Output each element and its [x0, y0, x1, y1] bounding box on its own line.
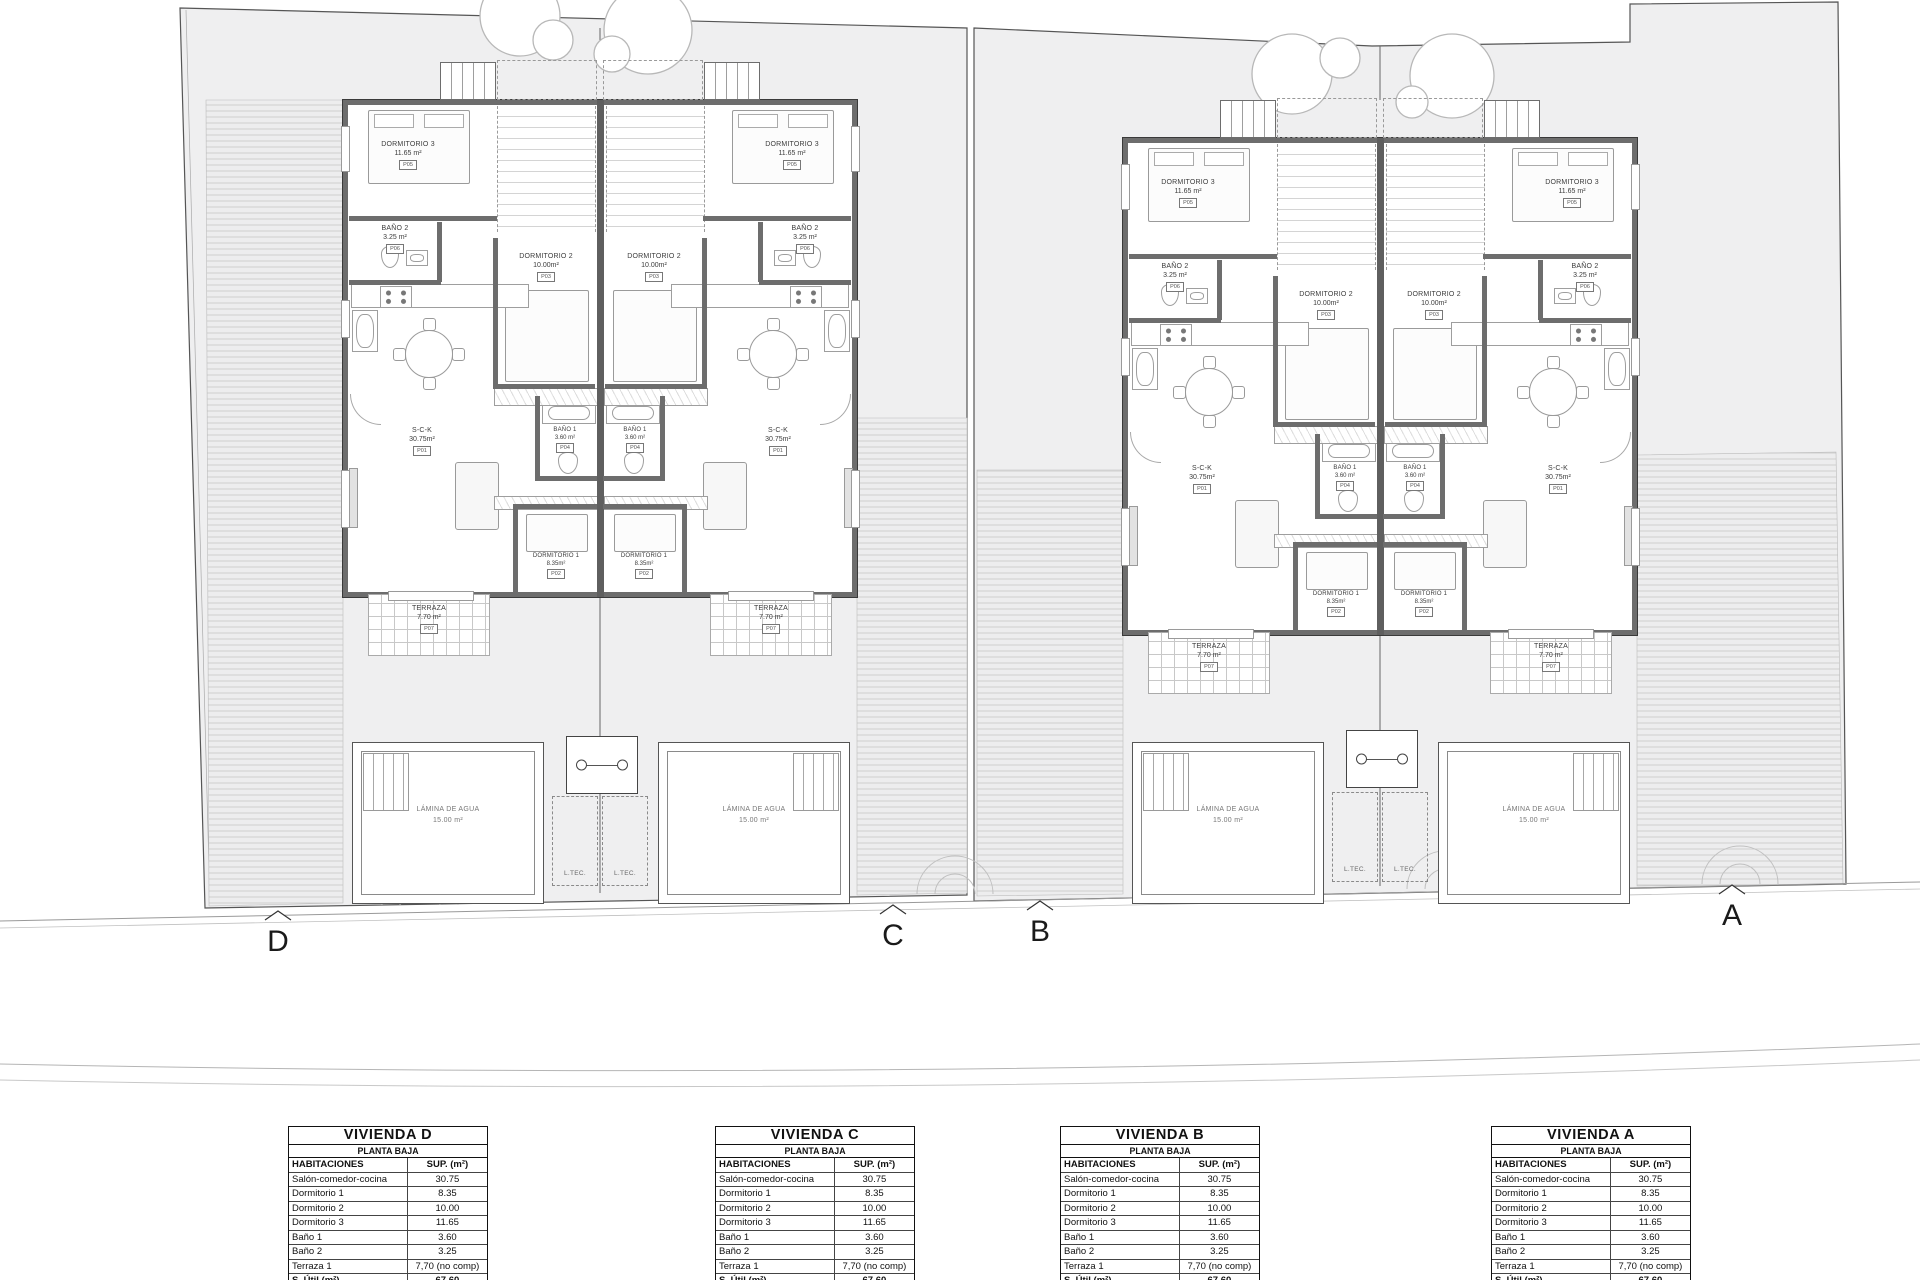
wall — [513, 504, 597, 509]
window — [1121, 164, 1130, 210]
room-label-bano1: BAÑO 13.60 m²P04 — [606, 426, 664, 453]
roof-overhang-outline — [603, 60, 703, 100]
wall — [1273, 422, 1375, 427]
table-vivienda-b: VIVIENDA B PLANTA BAJA HABITACIONESSUP. … — [1060, 1126, 1260, 1280]
table-row: Baño 13.60 — [289, 1231, 487, 1246]
room-label-bano2: BAÑO 23.25 m²P06 — [1132, 262, 1218, 292]
sofa — [703, 462, 747, 530]
pool-stairs — [1573, 753, 1619, 811]
exterior-stairs — [1220, 100, 1276, 138]
table-row: Terraza 17,70 (no comp) — [1061, 1260, 1259, 1275]
sofa — [455, 462, 499, 530]
kitchen-sink-icon — [352, 310, 378, 352]
kitchen-sink-icon — [1604, 348, 1630, 390]
section-marker-letter: A — [1704, 901, 1760, 931]
table-header-row: HABITACIONESSUP. (m²) — [289, 1158, 487, 1173]
table-total-row: S. Útil (m²)67.60 — [1061, 1274, 1259, 1280]
pool-d: LÁMINA DE AGUA15.00 m² — [352, 742, 544, 904]
pool-a: LÁMINA DE AGUA15.00 m² — [1438, 742, 1630, 904]
wardrobe — [494, 388, 598, 406]
tv-cabinet — [1129, 506, 1138, 566]
terrace-door — [1508, 629, 1594, 639]
window — [851, 300, 860, 338]
stair-bay — [497, 106, 596, 232]
wardrobe — [1384, 426, 1488, 444]
window — [341, 300, 350, 338]
room-label-bano1: BAÑO 13.60 m²P04 — [1316, 464, 1374, 491]
kitchen-sink-icon — [1132, 348, 1158, 390]
table-row: Baño 13.60 — [1492, 1231, 1690, 1246]
section-marker-b: B — [1012, 898, 1068, 947]
window — [851, 126, 860, 172]
table-row: Dormitorio 210.00 — [1492, 1202, 1690, 1217]
table-row: Salón-comedor-cocina30.75 — [716, 1173, 914, 1188]
section-marker-letter: C — [865, 921, 921, 951]
kitchen-counter — [671, 284, 849, 308]
table-header-row: HABITACIONESSUP. (m²) — [1492, 1158, 1690, 1173]
wall — [1315, 514, 1377, 519]
deck-strip-c — [857, 418, 967, 895]
pool-label: LÁMINA DE AGUA15.00 m² — [1133, 805, 1323, 826]
table-row: Terraza 17,70 (no comp) — [1492, 1260, 1690, 1275]
section-marker-triangle — [263, 909, 293, 921]
table-vivienda-c: VIVIENDA C PLANTA BAJA HABITACIONESSUP. … — [715, 1126, 915, 1280]
table-title: VIVIENDA B — [1061, 1127, 1259, 1145]
ltec-area: L.TEC. — [1382, 792, 1428, 882]
table-row: Terraza 17,70 (no comp) — [716, 1260, 914, 1275]
room-label-dormitorio3: DORMITORIO 311.65 m²P05 — [736, 140, 848, 170]
sofa — [1235, 500, 1279, 568]
single-bed — [1394, 552, 1456, 590]
wall — [493, 238, 498, 388]
table-title: VIVIENDA D — [289, 1127, 487, 1145]
dining-table — [1529, 368, 1577, 416]
dining-table — [1185, 368, 1233, 416]
deck-strip-a — [1637, 452, 1843, 886]
room-label-dormitorio2: DORMITORIO 210.00m²P03 — [608, 252, 700, 282]
table-subtitle: PLANTA BAJA — [716, 1145, 914, 1158]
pool-label: LÁMINA DE AGUA15.00 m² — [353, 805, 543, 826]
room-label-sck: S-C-K30.75m²P01 — [1172, 464, 1232, 494]
table-subtitle: PLANTA BAJA — [1492, 1145, 1690, 1158]
wall — [1385, 422, 1487, 427]
kitchen-sink-icon — [824, 310, 850, 352]
window — [851, 470, 860, 528]
room-label-dormitorio1: DORMITORIO 18.35m²P02 — [518, 552, 594, 579]
table-row: Dormitorio 210.00 — [1061, 1202, 1259, 1217]
table-row: Terraza 17,70 (no comp) — [289, 1260, 487, 1275]
table-subtitle: PLANTA BAJA — [289, 1145, 487, 1158]
table-vivienda-d: VIVIENDA D PLANTA BAJA HABITACIONESSUP. … — [288, 1126, 488, 1280]
ltec-area: L.TEC. — [1332, 792, 1378, 882]
exterior-stairs — [704, 62, 760, 100]
pool-stairs — [1143, 753, 1189, 811]
stair-bay — [1277, 144, 1376, 270]
table-row: Dormitorio 311.65 — [1492, 1216, 1690, 1231]
window — [341, 126, 350, 172]
window — [1631, 164, 1640, 210]
room-label-bano2: BAÑO 23.25 m²P06 — [762, 224, 848, 254]
wall — [1129, 318, 1221, 323]
room-label-dormitorio1: DORMITORIO 18.35m²P02 — [1386, 590, 1462, 617]
stove-icon — [380, 286, 412, 308]
section-marker-triangle — [1025, 899, 1055, 911]
room-label-bano2: BAÑO 23.25 m²P06 — [352, 224, 438, 254]
table-row: Dormitorio 18.35 — [716, 1187, 914, 1202]
table-row: Dormitorio 210.00 — [716, 1202, 914, 1217]
table-row: Dormitorio 311.65 — [1061, 1216, 1259, 1231]
stair-bay — [1386, 144, 1485, 270]
room-label-terraza: TERRAZA7.70 m²P07 — [730, 604, 812, 634]
table-row: Dormitorio 311.65 — [289, 1216, 487, 1231]
pool-b: LÁMINA DE AGUA15.00 m² — [1132, 742, 1324, 904]
table-title: VIVIENDA A — [1492, 1127, 1690, 1145]
table-title: VIVIENDA C — [716, 1127, 914, 1145]
window — [1121, 338, 1130, 376]
section-marker-triangle — [1717, 883, 1747, 895]
room-label-bano1: BAÑO 13.60 m²P04 — [1386, 464, 1444, 491]
table-row: Salón-comedor-cocina30.75 — [1061, 1173, 1259, 1188]
roof-overhang-outline — [1277, 98, 1377, 138]
pool-stairs — [793, 753, 839, 811]
dining-table — [405, 330, 453, 378]
exterior-stairs — [1484, 100, 1540, 138]
wall — [349, 216, 497, 221]
wardrobe — [604, 388, 708, 406]
table-row: Dormitorio 210.00 — [289, 1202, 487, 1217]
kitchen-counter — [351, 284, 529, 308]
kitchen-counter — [1451, 322, 1629, 346]
table-total-row: S. Útil (m²)67.60 — [1492, 1274, 1690, 1280]
table-row: Baño 23.25 — [1492, 1245, 1690, 1260]
table-subtitle: PLANTA BAJA — [1061, 1145, 1259, 1158]
room-label-dormitorio1: DORMITORIO 18.35m²P02 — [606, 552, 682, 579]
table-row: Baño 23.25 — [716, 1245, 914, 1260]
section-marker-a: A — [1704, 882, 1760, 931]
wall — [603, 476, 665, 481]
exterior-stairs — [440, 62, 496, 100]
table-row: Baño 13.60 — [1061, 1231, 1259, 1246]
room-label-sck: S-C-K30.75m²P01 — [748, 426, 808, 456]
pool-label: LÁMINA DE AGUA15.00 m² — [659, 805, 849, 826]
wall — [1273, 276, 1278, 426]
wall — [535, 476, 597, 481]
garden-gate — [566, 736, 638, 794]
section-marker-c: C — [865, 902, 921, 951]
wall — [605, 384, 707, 389]
pool-label: LÁMINA DE AGUA15.00 m² — [1439, 805, 1629, 826]
table-row: Salón-comedor-cocina30.75 — [1492, 1173, 1690, 1188]
table-row: Dormitorio 18.35 — [289, 1187, 487, 1202]
roof-overhang-outline — [497, 60, 597, 100]
table-row: Salón-comedor-cocina30.75 — [289, 1173, 487, 1188]
table-total-row: S. Útil (m²)67.60 — [289, 1274, 487, 1280]
window — [341, 470, 350, 528]
wall — [513, 504, 518, 594]
pool-c: LÁMINA DE AGUA15.00 m² — [658, 742, 850, 904]
terrace-door — [388, 591, 474, 601]
ltec-area: L.TEC. — [552, 796, 598, 886]
single-bed — [1306, 552, 1368, 590]
terrace-door — [1168, 629, 1254, 639]
table-header-row: HABITACIONESSUP. (m²) — [716, 1158, 914, 1173]
room-label-sck: S-C-K30.75m²P01 — [1528, 464, 1588, 494]
room-label-terraza: TERRAZA7.70 m²P07 — [1510, 642, 1592, 672]
pool-stairs — [363, 753, 409, 811]
site-plan-page: DORMITORIO 311.65 m²P05 BAÑO 23.25 m²P06… — [0, 0, 1920, 1280]
wall — [1539, 318, 1631, 323]
table-row: Dormitorio 18.35 — [1061, 1187, 1259, 1202]
stove-icon — [1570, 324, 1602, 346]
section-marker-letter: D — [250, 927, 306, 957]
table-row: Baño 23.25 — [1061, 1245, 1259, 1260]
window — [1631, 508, 1640, 566]
stair-bay — [606, 106, 705, 232]
single-bed — [614, 514, 676, 552]
room-label-dormitorio3: DORMITORIO 311.65 m²P05 — [352, 140, 464, 170]
table-row: Dormitorio 311.65 — [716, 1216, 914, 1231]
wall — [702, 238, 707, 388]
road-line-2 — [0, 1060, 1920, 1087]
deck-strip-left — [206, 100, 343, 906]
stove-icon — [790, 286, 822, 308]
road-line-1 — [0, 1044, 1920, 1071]
wall — [759, 280, 851, 285]
table-total-row: S. Útil (m²)67.60 — [716, 1274, 914, 1280]
party-wall-dc — [597, 100, 604, 597]
wall — [703, 216, 851, 221]
wall — [603, 504, 687, 509]
table-row: Dormitorio 18.35 — [1492, 1187, 1690, 1202]
wall — [1462, 542, 1467, 632]
wall — [1383, 514, 1445, 519]
room-label-dormitorio3: DORMITORIO 311.65 m²P05 — [1516, 178, 1628, 208]
wall — [1129, 254, 1277, 259]
ltec-area: L.TEC. — [602, 796, 648, 886]
garden-gate — [1346, 730, 1418, 788]
wall — [349, 280, 441, 285]
room-label-dormitorio2: DORMITORIO 210.00m²P03 — [1388, 290, 1480, 320]
stove-icon — [1160, 324, 1192, 346]
section-marker-letter: B — [1012, 917, 1068, 947]
section-marker-triangle — [878, 903, 908, 915]
wall — [1483, 254, 1631, 259]
party-wall-ba — [1377, 138, 1384, 635]
deck-strip-b — [977, 470, 1123, 896]
table-row: Baño 23.25 — [289, 1245, 487, 1260]
wall — [682, 504, 687, 594]
roof-overhang-outline — [1383, 98, 1483, 138]
tv-cabinet — [349, 468, 358, 528]
dining-table — [749, 330, 797, 378]
room-label-bano2: BAÑO 23.25 m²P06 — [1542, 262, 1628, 292]
wall — [493, 384, 595, 389]
wall — [1482, 276, 1487, 426]
table-vivienda-a: VIVIENDA A PLANTA BAJA HABITACIONESSUP. … — [1491, 1126, 1691, 1280]
table-header-row: HABITACIONESSUP. (m²) — [1061, 1158, 1259, 1173]
room-label-dormitorio1: DORMITORIO 18.35m²P02 — [1298, 590, 1374, 617]
room-label-dormitorio2: DORMITORIO 210.00m²P03 — [1280, 290, 1372, 320]
wardrobe — [1274, 426, 1378, 444]
kitchen-counter — [1131, 322, 1309, 346]
room-label-terraza: TERRAZA7.70 m²P07 — [1168, 642, 1250, 672]
wall — [1383, 542, 1467, 547]
room-label-bano1: BAÑO 13.60 m²P04 — [536, 426, 594, 453]
room-label-sck: S-C-K30.75m²P01 — [392, 426, 452, 456]
sofa — [1483, 500, 1527, 568]
window — [1631, 338, 1640, 376]
window — [1121, 508, 1130, 566]
wall — [1293, 542, 1377, 547]
section-marker-d: D — [250, 908, 306, 957]
wall — [1293, 542, 1298, 632]
room-label-dormitorio3: DORMITORIO 311.65 m²P05 — [1132, 178, 1244, 208]
room-label-terraza: TERRAZA7.70 m²P07 — [388, 604, 470, 634]
single-bed — [526, 514, 588, 552]
room-label-dormitorio2: DORMITORIO 210.00m²P03 — [500, 252, 592, 282]
table-row: Baño 13.60 — [716, 1231, 914, 1246]
terrace-door — [728, 591, 814, 601]
